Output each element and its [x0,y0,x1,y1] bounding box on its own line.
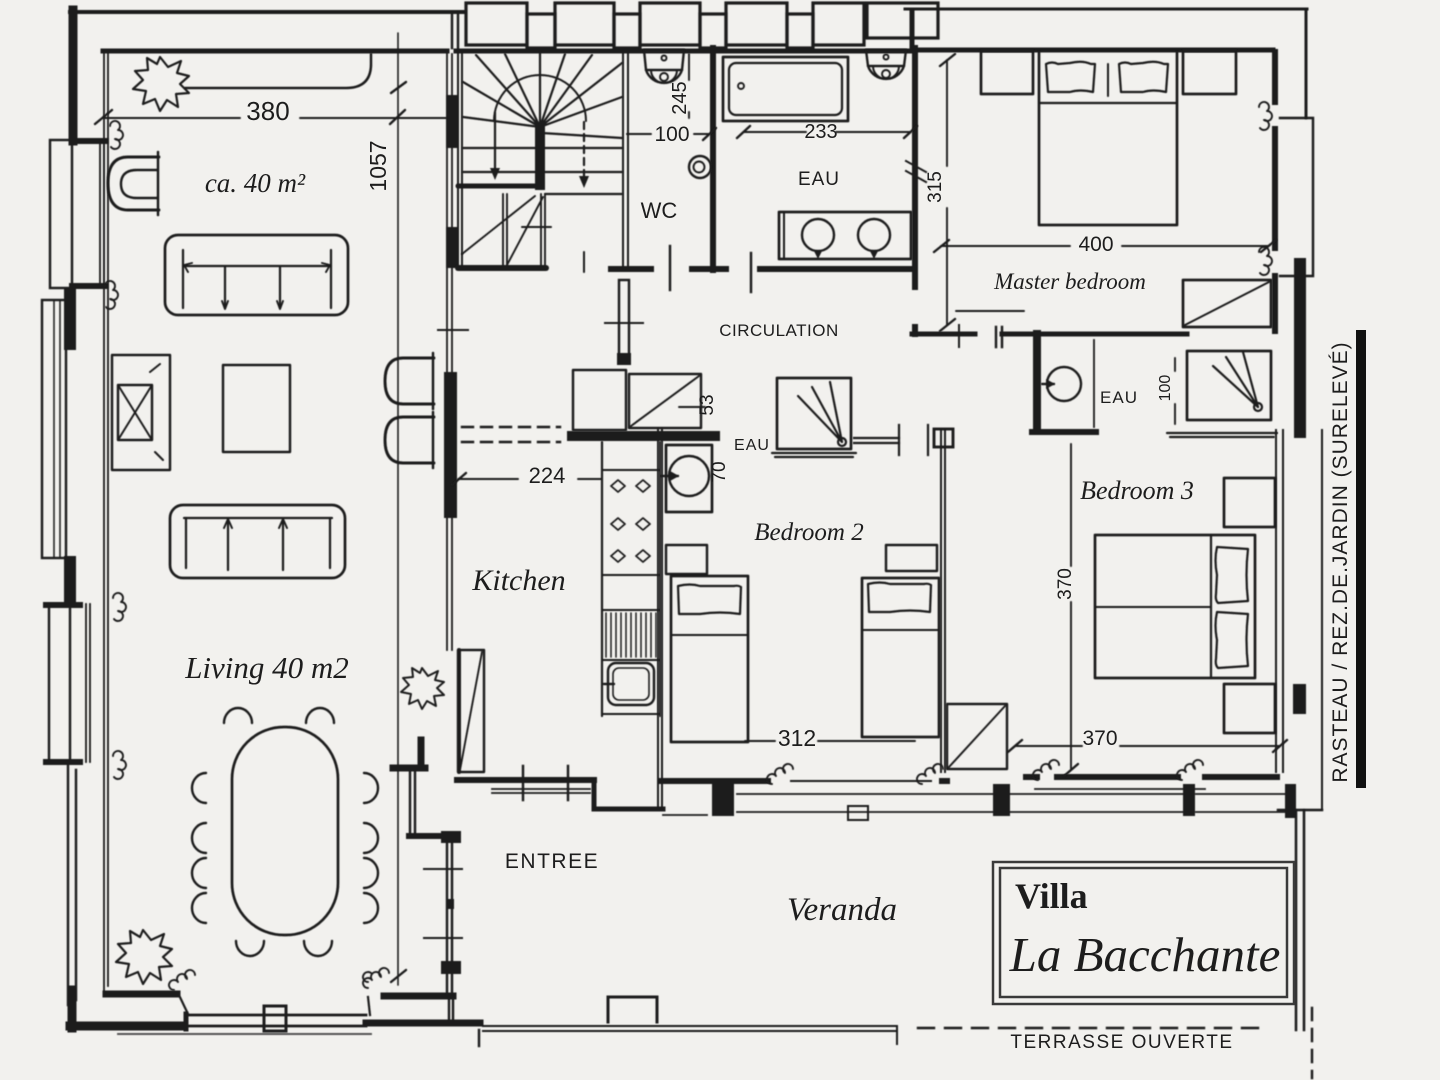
svg-text:400: 400 [1078,233,1113,256]
svg-text:La Bacchante: La Bacchante [1009,927,1281,982]
svg-text:380: 380 [246,96,289,126]
svg-text:Living 40 m2: Living 40 m2 [184,650,349,685]
svg-text:CIRCULATION: CIRCULATION [719,321,838,340]
svg-text:EAU: EAU [798,169,840,190]
svg-text:EAU: EAU [734,437,770,454]
svg-text:315: 315 [925,171,946,203]
svg-text:Bedroom 2: Bedroom 2 [754,519,863,546]
svg-text:Villa: Villa [1015,876,1088,916]
svg-text:Kitchen: Kitchen [471,564,565,597]
svg-text:1057: 1057 [365,140,391,191]
svg-text:53: 53 [697,394,718,415]
svg-text:WC: WC [641,198,678,223]
svg-text:100: 100 [1157,375,1174,402]
svg-text:ca. 40 m²: ca. 40 m² [205,168,306,198]
svg-text:EAU: EAU [1100,388,1138,407]
svg-text:245: 245 [669,81,691,114]
svg-text:70: 70 [709,461,730,482]
svg-text:Bedroom 3: Bedroom 3 [1080,476,1194,505]
svg-text:Veranda: Veranda [787,892,897,928]
svg-text:312: 312 [778,725,816,751]
svg-text:370: 370 [1055,568,1076,600]
svg-text:Master bedroom: Master bedroom [993,269,1146,294]
svg-text:100: 100 [654,123,689,146]
svg-text:224: 224 [529,463,566,488]
svg-text:ENTREE: ENTREE [505,850,599,873]
svg-text:233: 233 [804,121,837,143]
svg-text:TERRASSE OUVERTE: TERRASSE OUVERTE [1010,1032,1233,1053]
svg-text:370: 370 [1082,727,1117,750]
svg-text:RASTEAU / REZ.DE.JARDIN (SUREL: RASTEAU / REZ.DE.JARDIN (SURELEVÉ) [1329,341,1352,782]
